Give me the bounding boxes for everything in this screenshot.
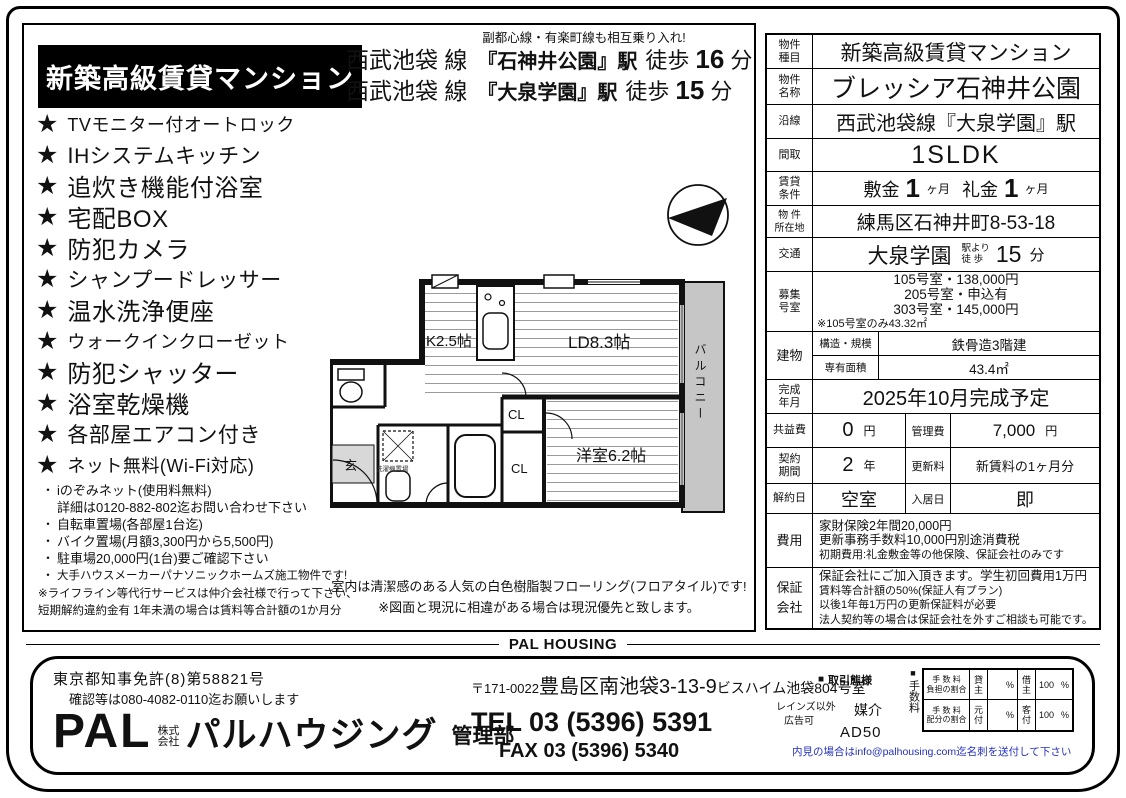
room-label-bedroom: 洋室6.2帖 (576, 442, 646, 466)
room-label-kitchen: K2.5帖 (426, 330, 472, 351)
brand-divider: PAL HOUSING (26, 636, 1100, 653)
structure-value: 鉄骨造3階建 (879, 332, 1099, 355)
feature-item: ★浴室乾燥機 (36, 387, 295, 418)
access-row: 西武池袋 線 『石神井公園』駅 徒歩 16 分 (346, 41, 752, 72)
company-left: 東京都知事免許(8)第58821号 確認等は080-4082-0110迄お願いし… (53, 668, 471, 766)
unit-listings: 105号室・138,000円 205号室・申込有 303号室・145,000円 … (813, 272, 1099, 331)
deposit-key-money: 敷金 1 ヶ月 礼金 1 ヶ月 (813, 172, 1099, 205)
spec-row-terms: 賃貸条件 敷金 1 ヶ月 礼金 1 ヶ月 (767, 172, 1099, 206)
star-icon: ★ (36, 388, 58, 418)
ad-code: AD50 (840, 724, 882, 741)
contract-term: 2年 (813, 448, 905, 483)
structure-row: 構造・規模 鉄骨造3階建 (813, 332, 1099, 356)
spec-row-vacancy: 解約日 空室 入居日 即 (767, 484, 1099, 514)
row-label: 入居日 (905, 484, 951, 513)
penalty-note: 短期解約違約金有 1年未満の場合は賃料等合計額の1か月分 (38, 602, 341, 618)
fee-header: 手 数 料負担の割合 (924, 670, 970, 700)
star-icon: ★ (36, 264, 58, 294)
trade-type-value: 媒介 (854, 700, 882, 720)
company-name: パルハウジング (185, 718, 437, 753)
black-square-icon: ■ (910, 669, 915, 678)
room-label-closet: CL (511, 461, 528, 476)
feature-item: ★ネット無料(Wi-Fi対応) (36, 449, 295, 480)
spec-row-units: 募集号室 105号室・138,000円 205号室・申込有 303号室・145,… (767, 272, 1099, 332)
management-fee: 7,000円 (951, 414, 1099, 447)
lifeline-note: ※ライフライン等代行サービスは仲介会社様で行って下さい、 (38, 585, 358, 601)
access-row: 西武池袋 線 『大泉学園』駅 徒歩 15 分 (346, 72, 752, 103)
spec-row-address: 物 件所在地 練馬区石神井町8-53-18 (767, 206, 1099, 238)
common-fee: 0円 (813, 414, 905, 447)
address-value: 練馬区石神井町8-53-18 (813, 206, 1099, 237)
row-label: 完成年月 (767, 380, 813, 413)
row-label: 共益費 (767, 414, 813, 447)
brokerage-info: ■ 取引態様 レインズ以外 広告可 媒介 AD50 ■ 手数料 手 数 料負担の… (776, 668, 1080, 766)
property-spec-table: 物件種目 新築高級賃貸マンション 物件名称 ブレッシア石神井公園 沿線 西武池袋… (765, 33, 1101, 630)
disclaimer-caption: ※図面と現況に相違がある場合は現況優先と致します。 (320, 597, 758, 618)
room-label-closet: CL (508, 407, 525, 422)
access-value: 大泉学園 駅より徒 歩 15 分 (813, 238, 1099, 271)
row-label: 交通 (767, 238, 813, 271)
row-label: 更新料 (905, 448, 951, 483)
vacancy-value: 空室 (813, 484, 905, 513)
logo-en: PAL (53, 712, 151, 753)
company-contact: 〒171-0022 豊島区南池袋3-13-9 ビスハイム池袋804号室 TEL … (471, 668, 776, 766)
star-icon: ★ (36, 233, 58, 263)
spec-row-fees: 共益費 0円 管理費 7,000円 (767, 414, 1099, 448)
row-label: 建物 (767, 332, 813, 379)
rail-line: 西武池袋 線 (346, 72, 467, 106)
dot-icon: ・ (42, 481, 57, 498)
main-content-box: 新築高級賃貸マンション 副都心線・有楽町線も相互乗り入れ! 西武池袋 線 『石神… (22, 23, 756, 632)
room-label-washer: 洗濯機置場 (376, 463, 409, 473)
star-icon: ★ (36, 295, 58, 325)
property-type: 新築高級賃貸マンション (813, 35, 1099, 68)
company-address: 〒171-0022 豊島区南池袋3-13-9 ビスハイム池袋804号室 (471, 670, 776, 699)
row-label: 物件名称 (767, 69, 813, 104)
feature-item: ★シャンプードレッサー (36, 263, 295, 294)
row-label: 契約期間 (767, 448, 813, 483)
movein-value: 即 (951, 484, 1099, 513)
star-icon: ★ (36, 202, 58, 232)
property-name: ブレッシア石神井公園 (813, 69, 1099, 104)
room-label-living: LD8.3帖 (568, 328, 630, 353)
room-label-entrance: 玄 (344, 455, 357, 474)
spec-row-contract: 契約期間 2年 更新料 新賃料の1ヶ月分 (767, 448, 1099, 484)
walk-minutes: 16 (695, 44, 724, 75)
spec-row-costs: 費用 家財保険2年間20,000円 更新事務手数料10,000円別途消費税 初期… (767, 514, 1099, 568)
spec-row-guarantor: 保証会社 保証会社にご加入頂きます。学生初回費用1万円 賃料等合計額の50%(保… (767, 568, 1099, 628)
note-item: ・駐車場20,000円(1台)要ご確認下さい (42, 549, 347, 566)
rail-line: 西武池袋 線 (346, 41, 467, 75)
completion-value: 2025年10月完成予定 (813, 380, 1099, 413)
feature-item: ★TVモニター付オートロック (36, 108, 295, 139)
feature-item: ★各部屋エアコン付き (36, 418, 295, 449)
black-square-icon: ■ (818, 675, 824, 685)
walk-unit: 分 (730, 43, 752, 75)
row-label: 間取 (767, 139, 813, 171)
rail-line-value: 西武池袋線『大泉学園』駅 (813, 105, 1099, 138)
layout-value: 1SLDK (813, 139, 1099, 171)
note-item-continuation: 詳細は0120-882-802迄お問い合わせ下さい (42, 498, 347, 515)
note-item: ・大手ハウスメーカーパナソニックホームズ施工物件です! (42, 566, 347, 583)
license-number: 東京都知事免許(8)第58821号 (53, 668, 471, 689)
company-footer: 東京都知事免許(8)第58821号 確認等は080-4082-0110迄お願いし… (30, 656, 1095, 775)
floor-plan-drawing (330, 145, 745, 575)
spec-row-completion: 完成年月 2025年10月完成予定 (767, 380, 1099, 414)
row-label: 賃貸条件 (767, 172, 813, 205)
spec-row-layout: 間取 1SLDK (767, 139, 1099, 172)
brand-name: PAL HOUSING (509, 636, 617, 653)
company-logo: PAL 株式会社 パルハウジング 管理部 (53, 712, 471, 753)
row-label: 費用 (767, 514, 813, 567)
dot-icon: ・ (42, 532, 57, 549)
commission-side-label: ■ 手数料 (906, 668, 920, 732)
spec-row-name: 物件名称 ブレッシア石神井公園 (767, 69, 1099, 105)
feature-list: ★TVモニター付オートロック ★ⅠHシステムキッチン ★追炊き機能付浴室 ★宅配… (36, 108, 295, 480)
dot-icon: ・ (42, 515, 57, 532)
dot-icon: ・ (42, 549, 57, 566)
walk-label: 徒歩 (625, 74, 669, 106)
visit-email-note: 内見の場合はinfo@palhousing.com迄名刺を送付して下さい (792, 744, 1071, 759)
star-icon: ★ (36, 171, 58, 201)
notes-list: ・iのぞみネット(使用料無料) 詳細は0120-882-802迄お問い合わせ下さ… (42, 481, 347, 583)
star-icon: ★ (36, 450, 58, 480)
star-icon: ★ (36, 326, 58, 356)
guarantor-details: 保証会社にご加入頂きます。学生初回費用1万円 賃料等合計額の50%(保証人有プラ… (813, 568, 1099, 628)
walk-minutes: 15 (675, 75, 704, 106)
renewal-fee: 新賃料の1ヶ月分 (951, 448, 1099, 483)
station-access-list: 西武池袋 線 『石神井公園』駅 徒歩 16 分 西武池袋 線 『大泉学園』駅 徒… (346, 41, 752, 103)
flooring-caption: 室内は清潔感のある人気の白色樹脂製フローリング(フロアタイル)です! (320, 576, 758, 597)
row-label: 募集号室 (767, 272, 813, 331)
walk-unit: 分 (710, 74, 732, 106)
row-label: 解約日 (767, 484, 813, 513)
spec-row-type: 物件種目 新築高級賃貸マンション (767, 35, 1099, 69)
reins-note: レインズ以外 (776, 698, 836, 713)
feature-item: ★温水洗浄便座 (36, 294, 295, 325)
feature-item: ★ⅠHシステムキッチン (36, 139, 295, 170)
note-item: ・iのぞみネット(使用料無料) (42, 481, 347, 498)
feature-item: ★宅配BOX (36, 201, 295, 232)
trade-type-label: ■ 取引態様 (818, 672, 872, 688)
feature-item: ★防犯シャッター (36, 356, 295, 387)
plan-captions: 室内は清潔感のある人気の白色樹脂製フローリング(フロアタイル)です! ※図面と現… (320, 576, 758, 618)
row-label: 物件種目 (767, 35, 813, 68)
corp-type: 株式会社 (157, 726, 179, 749)
star-icon: ★ (36, 109, 58, 139)
ad-permission: 広告可 (784, 712, 814, 727)
walk-label: 徒歩 (645, 43, 689, 75)
row-label: 管理費 (905, 414, 951, 447)
spec-row-building: 建物 構造・規模 鉄骨造3階建 専有面積 43.4㎡ (767, 332, 1099, 380)
tel-number: TEL 03 (5396) 5391 (471, 707, 776, 738)
area-value: 43.4㎡ (879, 356, 1099, 379)
spec-row-line: 沿線 西武池袋線『大泉学園』駅 (767, 105, 1099, 139)
room-label-balcony: バルコニー (692, 343, 709, 423)
feature-item: ★追炊き機能付浴室 (36, 170, 295, 201)
star-icon: ★ (36, 357, 58, 387)
row-label: 物 件所在地 (767, 206, 813, 237)
feature-item: ★ウォークインクローゼット (36, 325, 295, 356)
spec-row-access: 交通 大泉学園 駅より徒 歩 15 分 (767, 238, 1099, 272)
feature-item: ★防犯カメラ (36, 232, 295, 263)
row-label: 沿線 (767, 105, 813, 138)
star-icon: ★ (36, 140, 58, 170)
floor-plan: K2.5帖 LD8.3帖 洋室6.2帖 CL CL 玄 バルコニー 洗濯機置場 (330, 145, 745, 575)
area-row: 専有面積 43.4㎡ (813, 356, 1099, 379)
star-icon: ★ (36, 419, 58, 449)
fee-header: 手 数 料配分の割合 (924, 700, 970, 730)
cost-details: 家財保険2年間20,000円 更新事務手数料10,000円別途消費税 初期費用:… (813, 514, 1099, 567)
note-item: ・バイク置場(月額3,300円から5,500円) (42, 532, 347, 549)
commission-table: ■ 手数料 手 数 料負担の割合 貸主 % 借主 100% 手 数 料配分の割合… (906, 668, 1074, 732)
station-name: 『石神井公園』駅 (477, 45, 637, 74)
title-badge: 新築高級賃貸マンション (38, 45, 362, 108)
station-name: 『大泉学園』駅 (477, 76, 617, 105)
note-item: ・自転車置場(各部屋1台迄) (42, 515, 347, 532)
dot-icon: ・ (42, 566, 57, 583)
row-label: 保証会社 (767, 568, 813, 628)
fax-number: FAX 03 (5396) 5340 (499, 740, 776, 763)
